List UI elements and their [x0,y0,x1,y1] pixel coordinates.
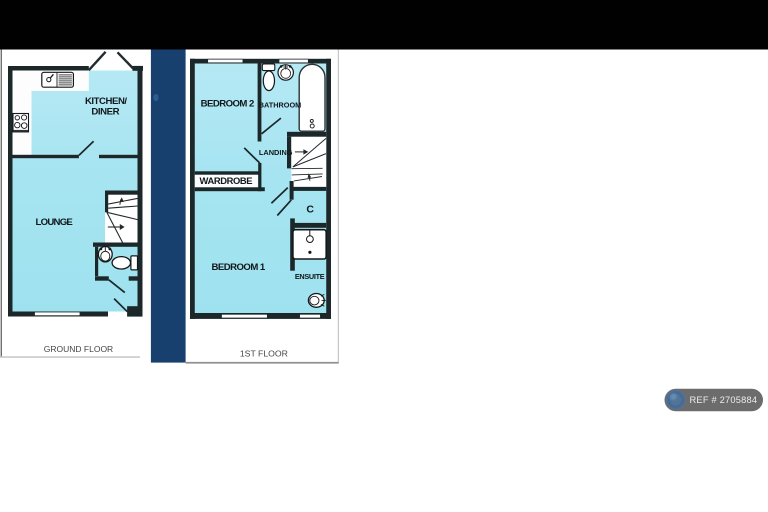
svg-text:DINER: DINER [91,107,119,118]
svg-text:LOUNGE: LOUNGE [36,217,74,228]
svg-text:BATHROOM: BATHROOM [259,100,301,109]
svg-text:KITCHEN/: KITCHEN/ [85,96,127,107]
svg-text:1ST FLOOR: 1ST FLOOR [240,349,288,359]
svg-text:ENSUITE: ENSUITE [295,272,325,281]
svg-text:BEDROOM 2: BEDROOM 2 [201,99,254,110]
svg-text:GROUND FLOOR: GROUND FLOOR [44,344,113,354]
svg-text:REF # 2705884: REF # 2705884 [690,395,758,405]
svg-text:C: C [306,203,314,215]
svg-text:BEDROOM 1: BEDROOM 1 [212,262,266,273]
svg-text:LANDING: LANDING [259,148,293,157]
svg-text:WARDROBE: WARDROBE [200,175,253,186]
